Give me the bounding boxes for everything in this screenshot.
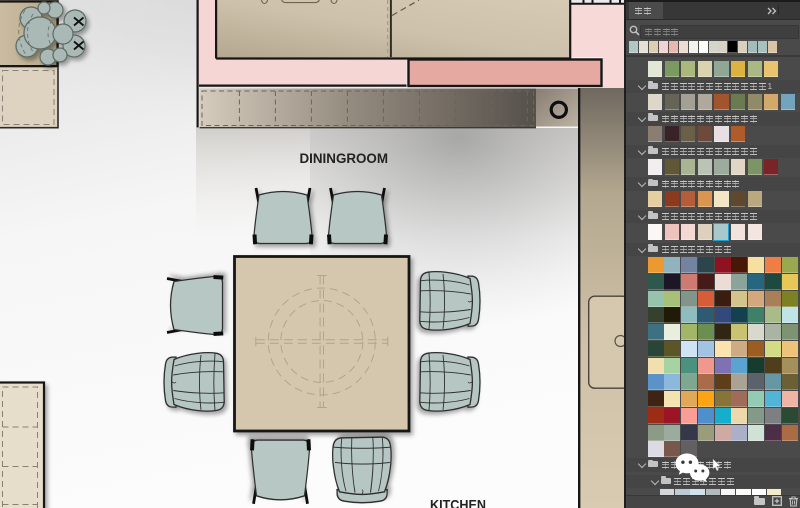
svg-text:DININGROOM: DININGROOM — [300, 151, 389, 166]
svg-text:KITCHEN: KITCHEN — [430, 498, 486, 508]
